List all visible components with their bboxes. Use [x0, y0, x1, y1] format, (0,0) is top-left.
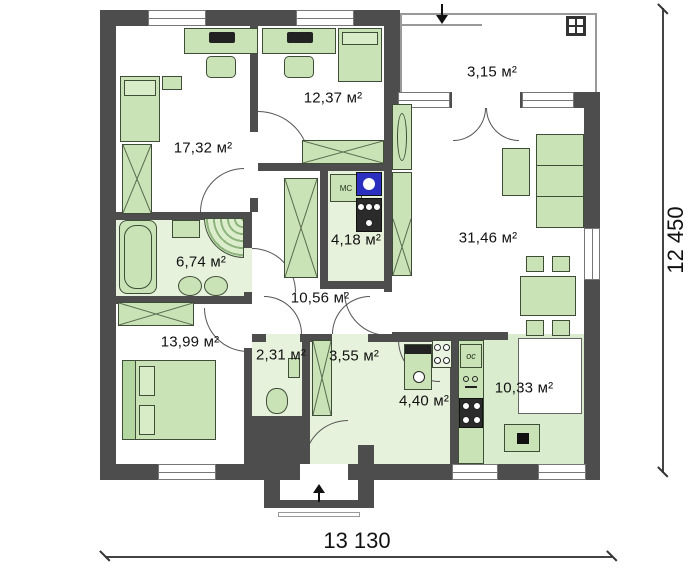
wall-laundry-west: [320, 170, 328, 288]
room-label-living-room: 31,46 м²: [459, 230, 518, 247]
hall-cabinet: [392, 172, 412, 276]
dining-chair-icon: [526, 256, 544, 272]
fridge-icon: ос: [460, 344, 482, 368]
entry-door-opening: [452, 92, 520, 108]
armchair-icon: [502, 148, 530, 196]
room-label-bedroom-1: 17,32 м²: [174, 140, 233, 157]
dining-table-icon: [520, 276, 576, 316]
computer-icon: [209, 32, 235, 43]
nightstand-icon: [162, 76, 182, 90]
porch-door-opening: [300, 464, 348, 480]
wall-stub: [250, 198, 258, 212]
kitchen-table-icon: [504, 424, 540, 452]
window: [158, 464, 216, 480]
dining-chair-icon: [552, 320, 570, 336]
dimension-height: 12 450: [663, 206, 689, 273]
kitchen-island: [518, 338, 582, 414]
door-arc: [453, 108, 486, 141]
dining-chair-icon: [526, 320, 544, 336]
stove-icon: [356, 198, 382, 232]
room-label-hall: 3,55 м²: [329, 348, 379, 365]
window: [584, 228, 600, 280]
entry-arrow-icon: [313, 484, 325, 493]
room-label-terrace: 3,15 м²: [467, 64, 517, 81]
dimension-line-bottom: [105, 556, 612, 558]
room-label-boiler-room: 4,40 м²: [399, 393, 449, 410]
wall-hall-north: [252, 334, 266, 342]
sink-icon: [461, 374, 481, 394]
wall-bathroom-east: [244, 212, 252, 248]
washing-machine-icon: [356, 172, 382, 196]
chair-icon: [284, 56, 314, 78]
stove-icon: [432, 340, 452, 368]
wall-block: [252, 416, 308, 464]
wardrobe-icon: [122, 144, 152, 214]
washer-slot-label: МС: [340, 184, 352, 193]
boiler-icon: [404, 344, 432, 390]
wall-stub: [244, 292, 252, 304]
bed-icon: [338, 28, 382, 82]
bed-icon: [120, 76, 160, 142]
toilet-icon: [178, 276, 202, 296]
desk-icon: [262, 28, 336, 54]
wardrobe-icon: [284, 178, 318, 278]
porch-arrow-stem: [318, 492, 320, 502]
dimension-width: 13 130: [323, 528, 390, 554]
room-label-bathroom: 6,74 м²: [176, 254, 226, 271]
window: [148, 10, 206, 26]
sink-icon: [172, 220, 200, 238]
window: [452, 464, 498, 480]
window: [538, 464, 586, 480]
room-label-bedroom-3: 13,99 м²: [161, 334, 220, 351]
drain-icon: [566, 16, 586, 36]
toilet-icon: [266, 388, 288, 414]
stove-icon: [459, 398, 483, 428]
wall-kitchen-north: [458, 332, 508, 340]
fridge-label: ос: [466, 351, 476, 361]
chair-icon: [206, 56, 236, 78]
wall-right: [584, 92, 600, 480]
porch-step: [278, 512, 360, 517]
entry-arrow-icon: [436, 15, 448, 24]
room-label-kitchen: 10,33 м²: [495, 380, 554, 397]
dining-chair-icon: [552, 256, 570, 272]
wardrobe-icon: [118, 302, 194, 326]
sofa-icon: [536, 134, 584, 228]
door-arc: [486, 108, 519, 141]
mirror-cabinet-icon: [392, 104, 412, 170]
door-arc: [200, 168, 244, 212]
room-label-wc: 2,31 м²: [256, 347, 306, 364]
wall-top: [100, 10, 400, 26]
floor-plan: МС: [0, 0, 700, 575]
wall-bedroom3-east: [244, 348, 252, 464]
wall-boiler-north: [392, 332, 458, 340]
room-label-hallway: 10,56 м²: [291, 290, 350, 307]
terrace-step-line: [402, 24, 482, 26]
bidet-icon: [204, 276, 228, 296]
bathtub-icon: [119, 220, 157, 294]
room-label-bedroom-2: 12,37 м²: [304, 90, 363, 107]
window: [522, 92, 574, 108]
wall-living-west: [384, 100, 392, 292]
wardrobe-icon: [302, 140, 384, 164]
wall-left: [100, 10, 116, 480]
wall-laundry-south: [320, 281, 392, 289]
window: [296, 10, 354, 26]
room-label-laundry: 4,18 м²: [331, 232, 381, 249]
double-bed-icon: [122, 360, 216, 440]
desk-icon: [184, 28, 258, 54]
computer-icon: [287, 32, 313, 43]
